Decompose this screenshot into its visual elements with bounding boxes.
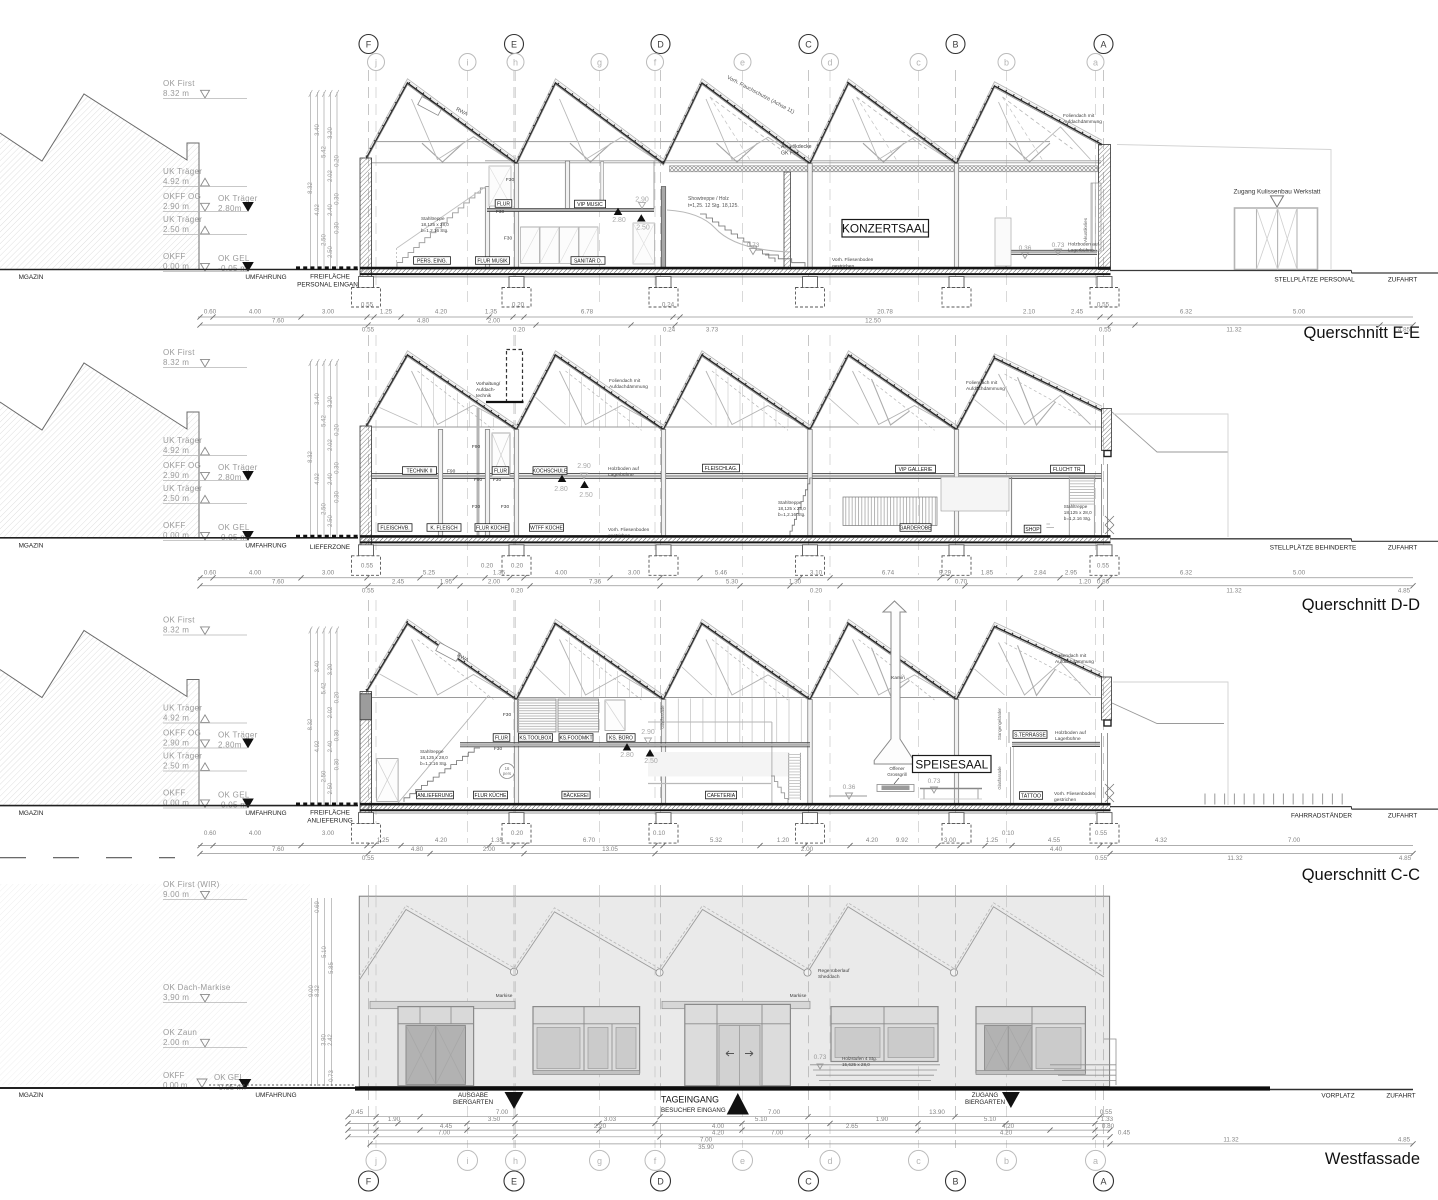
svg-text:WTFF KÜCHE: WTFF KÜCHE (530, 524, 563, 531)
svg-text:2.42: 2.42 (328, 1034, 334, 1046)
svg-text:Aufdach-: Aufdach- (476, 387, 496, 393)
svg-text:pers: pers (503, 771, 511, 776)
svg-text:Stahltreppe: Stahltreppe (421, 216, 445, 221)
svg-text:VIP MUSIC: VIP MUSIC (577, 202, 603, 208)
svg-text:4.00: 4.00 (249, 569, 262, 576)
svg-text:3.00: 3.00 (628, 569, 641, 576)
svg-text:4.20: 4.20 (435, 309, 448, 316)
svg-text:5.42: 5.42 (322, 682, 328, 694)
svg-text:2.00: 2.00 (483, 846, 496, 853)
svg-text:4.80: 4.80 (411, 846, 424, 853)
svg-text:2.90 m: 2.90 m (163, 471, 189, 480)
svg-text:4.80: 4.80 (417, 318, 430, 325)
svg-text:S.TERRASSE: S.TERRASSE (1014, 732, 1046, 738)
svg-text:Vorhaltung/: Vorhaltung/ (476, 381, 501, 387)
svg-text:FLUR KÜCHE: FLUR KÜCHE (475, 792, 508, 799)
svg-text:F90: F90 (472, 444, 481, 450)
svg-text:b=1,2.16 Stg.: b=1,2.16 Stg. (420, 761, 447, 766)
svg-text:OK First: OK First (163, 616, 195, 625)
svg-text:2.50 m: 2.50 m (163, 225, 189, 234)
svg-text:0.73: 0.73 (329, 1070, 335, 1082)
svg-text:OK First: OK First (163, 348, 195, 357)
svg-text:0.30: 0.30 (335, 758, 341, 770)
svg-text:4.40: 4.40 (1050, 846, 1063, 853)
svg-text:2.50: 2.50 (328, 515, 334, 527)
svg-text:2.90 m: 2.90 m (163, 739, 189, 748)
svg-text:h: h (513, 58, 518, 68)
svg-text:0.73: 0.73 (1052, 242, 1065, 249)
svg-text:OKFF OG: OKFF OG (163, 461, 201, 470)
svg-text:5.00: 5.00 (1293, 309, 1306, 316)
svg-text:TAGEINGANG: TAGEINGANG (661, 1095, 719, 1105)
svg-text:Lagerbühne: Lagerbühne (608, 472, 634, 478)
svg-text:FLUR: FLUR (495, 735, 508, 741)
svg-text:D: D (657, 1176, 664, 1186)
svg-text:6.32: 6.32 (1180, 309, 1193, 316)
svg-text:35.90: 35.90 (698, 1144, 714, 1151)
svg-text:SHOP: SHOP (1025, 527, 1040, 533)
svg-text:2.50: 2.50 (322, 770, 328, 782)
svg-text:3.20: 3.20 (328, 396, 334, 408)
svg-text:5.85: 5.85 (329, 962, 335, 974)
svg-text:1.90: 1.90 (388, 1116, 401, 1123)
svg-text:F30: F30 (493, 477, 502, 483)
svg-text:ZUFAHRT: ZUFAHRT (1386, 1093, 1415, 1100)
svg-text:11.32: 11.32 (1223, 1136, 1239, 1143)
svg-text:12.50: 12.50 (865, 318, 881, 325)
svg-text:UK Träger: UK Träger (163, 752, 202, 761)
svg-text:2.90: 2.90 (641, 729, 655, 736)
svg-text:3.00: 3.00 (322, 309, 335, 316)
svg-text:0.55: 0.55 (1097, 562, 1110, 569)
svg-text:2.50 m: 2.50 m (163, 494, 189, 503)
svg-text:0.20: 0.20 (335, 691, 341, 703)
svg-text:F30: F30 (503, 712, 512, 718)
svg-text:MGAZIN: MGAZIN (19, 1092, 44, 1099)
svg-text:0.55: 0.55 (1095, 830, 1108, 837)
svg-text:5.10: 5.10 (755, 1116, 768, 1123)
svg-text:1.30: 1.30 (789, 578, 802, 585)
svg-text:OKFF: OKFF (163, 1071, 184, 1080)
svg-text:0.20: 0.20 (810, 587, 823, 594)
svg-text:b=1,2.16 Stg.: b=1,2.16 Stg. (778, 512, 805, 517)
svg-text:2.02: 2.02 (328, 439, 334, 451)
svg-text:13.90: 13.90 (929, 1109, 945, 1116)
svg-text:Foliendach mit: Foliendach mit (609, 378, 641, 384)
svg-text:a: a (1093, 1156, 1098, 1166)
svg-text:2.80m: 2.80m (218, 473, 242, 482)
svg-text:6.32: 6.32 (1180, 569, 1193, 576)
svg-text:b: b (1004, 58, 1009, 68)
svg-text:F90: F90 (447, 469, 456, 475)
svg-text:5.46: 5.46 (715, 569, 728, 576)
svg-text:4.85: 4.85 (1399, 855, 1412, 862)
svg-text:e: e (740, 1156, 745, 1166)
svg-text:0.10: 0.10 (1002, 830, 1015, 837)
svg-text:FLEISCHVB.: FLEISCHVB. (380, 525, 409, 531)
svg-text:2.50 m: 2.50 m (163, 762, 189, 771)
svg-text:UK Träger: UK Träger (163, 484, 202, 493)
svg-text:5.10: 5.10 (984, 1116, 997, 1123)
svg-text:0.55: 0.55 (362, 327, 375, 334)
svg-text:CAFETERIA: CAFETERIA (707, 793, 736, 799)
svg-text:4.55: 4.55 (1048, 837, 1061, 844)
svg-text:VIP GALLERIE: VIP GALLERIE (899, 467, 933, 473)
svg-text:4.00: 4.00 (555, 569, 568, 576)
svg-text:0.20: 0.20 (335, 424, 341, 436)
svg-text:Aufdachdämmung: Aufdachdämmung (966, 386, 1005, 392)
svg-text:5.42: 5.42 (322, 415, 328, 427)
svg-text:FAHRRADSTÄNDER: FAHRRADSTÄNDER (1291, 812, 1352, 820)
svg-text:ZUFAHRT: ZUFAHRT (1388, 813, 1417, 820)
svg-text:Lagerbühne: Lagerbühne (1068, 248, 1094, 254)
svg-text:1.85: 1.85 (981, 569, 994, 576)
svg-text:Showtreppe / Holz: Showtreppe / Holz (688, 196, 729, 202)
svg-text:7.00: 7.00 (1288, 837, 1301, 844)
svg-text:F30: F30 (472, 504, 481, 510)
svg-text:0.73: 0.73 (747, 242, 760, 249)
svg-text:0.20: 0.20 (481, 562, 494, 569)
svg-text:3.90: 3.90 (322, 1034, 328, 1046)
svg-text:BESUCHER EINGANG: BESUCHER EINGANG (661, 1107, 726, 1114)
svg-text:STELLPLÄTZE BEHINDERTE: STELLPLÄTZE BEHINDERTE (1270, 543, 1357, 551)
svg-text:Offener: Offener (889, 766, 905, 771)
svg-text:VORPLATZ: VORPLATZ (1321, 1093, 1354, 1100)
svg-text:OK First (WIR): OK First (WIR) (163, 880, 220, 889)
svg-text:2.80m: 2.80m (218, 204, 242, 213)
svg-text:D: D (657, 39, 664, 49)
svg-text:a: a (1093, 58, 1098, 68)
svg-text:OK Träger: OK Träger (218, 194, 258, 203)
svg-text:FLUCHT TR.: FLUCHT TR. (1053, 467, 1082, 473)
svg-text:F30: F30 (506, 177, 515, 183)
svg-text:1.35: 1.35 (485, 309, 498, 316)
svg-text:OKFF: OKFF (163, 789, 186, 798)
svg-text:0.20: 0.20 (513, 327, 526, 334)
svg-text:e: e (740, 58, 745, 68)
svg-text:0.20: 0.20 (511, 830, 524, 837)
svg-text:2.65: 2.65 (846, 1123, 859, 1130)
svg-text:g: g (597, 58, 602, 68)
svg-text:11.32: 11.32 (1227, 855, 1243, 862)
svg-text:SPEISESAAL: SPEISESAAL (915, 758, 988, 772)
svg-text:2.90 m: 2.90 m (163, 202, 189, 211)
svg-text:Querschnitt E-E: Querschnitt E-E (1304, 324, 1420, 342)
svg-text:Foliendach mit: Foliendach mit (1063, 113, 1095, 119)
svg-text:g: g (597, 1156, 602, 1166)
svg-text:Aufdachdämmung: Aufdachdämmung (1063, 119, 1102, 125)
svg-text:7.60: 7.60 (272, 578, 285, 585)
svg-text:0.30: 0.30 (335, 462, 341, 474)
svg-text:4.92: 4.92 (315, 740, 321, 752)
svg-text:8.32 m: 8.32 m (163, 626, 189, 635)
svg-text:AUSGABE: AUSGABE (458, 1092, 488, 1099)
svg-text:d: d (827, 58, 832, 68)
svg-text:C: C (805, 1176, 812, 1186)
svg-text:i: i (467, 58, 469, 68)
svg-text:0.55: 0.55 (362, 587, 375, 594)
svg-text:i: i (467, 1156, 469, 1166)
svg-text:4.85: 4.85 (1398, 587, 1411, 594)
svg-text:F30: F30 (504, 236, 513, 242)
svg-text:0.70: 0.70 (955, 578, 968, 585)
svg-text:STELLPLÄTZE PERSONAL: STELLPLÄTZE PERSONAL (1274, 276, 1355, 284)
svg-text:gestrichen: gestrichen (1054, 797, 1076, 803)
svg-text:BIERGARTEN: BIERGARTEN (965, 1099, 1005, 1106)
svg-text:OK Träger: OK Träger (218, 463, 258, 472)
svg-text:ANLIEFERUNG: ANLIEFERUNG (417, 793, 453, 799)
svg-text:C: C (805, 39, 812, 49)
svg-text:OKFF OG: OKFF OG (163, 729, 201, 738)
svg-text:BÄCKEREI: BÄCKEREI (563, 792, 588, 799)
svg-text:8.32: 8.32 (308, 718, 314, 730)
svg-text:ZUGANG: ZUGANG (972, 1092, 999, 1099)
svg-text:FLUR: FLUR (497, 201, 510, 207)
svg-text:1.35: 1.35 (493, 569, 506, 576)
svg-text:FREIFLÄCHE: FREIFLÄCHE (310, 273, 350, 281)
svg-text:7.60: 7.60 (272, 846, 285, 853)
svg-text:5.25: 5.25 (423, 569, 436, 576)
svg-text:0.55: 0.55 (361, 302, 374, 309)
svg-text:0.55: 0.55 (1099, 327, 1112, 334)
svg-text:KS.FOODMKT: KS.FOODMKT (559, 735, 592, 741)
svg-text:0.20: 0.20 (512, 302, 525, 309)
svg-text:Stahltreppe: Stahltreppe (778, 500, 802, 505)
svg-text:8.32: 8.32 (308, 182, 314, 194)
svg-text:4.85: 4.85 (1398, 1136, 1411, 1143)
svg-text:0.20: 0.20 (335, 155, 341, 167)
svg-text:1.25: 1.25 (380, 309, 393, 316)
svg-text:Grossgrill: Grossgrill (887, 772, 906, 777)
svg-text:BIERGARTEN: BIERGARTEN (453, 1099, 493, 1106)
svg-text:Aufdachdämmung: Aufdachdämmung (609, 384, 648, 390)
svg-text:6.78: 6.78 (581, 309, 594, 316)
svg-text:0.55: 0.55 (1095, 855, 1108, 862)
svg-text:3.50: 3.50 (488, 1116, 501, 1123)
svg-text:UK Träger: UK Träger (163, 436, 202, 445)
svg-text:1.20: 1.20 (1079, 578, 1092, 585)
svg-text:0.60: 0.60 (204, 569, 217, 576)
svg-text:Aufdachdämmung: Aufdachdämmung (1055, 659, 1094, 665)
svg-text:4.20: 4.20 (1000, 1130, 1013, 1137)
svg-text:4.00: 4.00 (249, 309, 262, 316)
svg-text:2.40: 2.40 (328, 204, 334, 216)
svg-text:A: A (1100, 39, 1106, 49)
svg-text:t=1,25. 12 Stg. 18,125.: t=1,25. 12 Stg. 18,125. (688, 203, 739, 209)
svg-text:KONZERTSAAL: KONZERTSAAL (842, 222, 929, 236)
svg-text:2.50: 2.50 (328, 782, 334, 794)
svg-text:Holzboden auf: Holzboden auf (1068, 242, 1100, 248)
svg-text:Westfassade: Westfassade (1325, 1150, 1420, 1168)
svg-text:18,125 x 28,0: 18,125 x 28,0 (421, 222, 449, 227)
svg-text:2.50: 2.50 (644, 758, 658, 765)
svg-text:UMFAHRUNG: UMFAHRUNG (245, 542, 286, 549)
svg-text:0.20: 0.20 (511, 562, 524, 569)
svg-text:0.60: 0.60 (204, 309, 217, 316)
svg-text:PERS. EING.: PERS. EING. (417, 258, 447, 264)
svg-text:Vorh. Fliesenboden: Vorh. Fliesenboden (1054, 791, 1096, 797)
svg-text:0.10: 0.10 (653, 830, 666, 837)
svg-text:ZUFAHRT: ZUFAHRT (1388, 277, 1417, 284)
svg-text:3.73: 3.73 (706, 327, 719, 334)
svg-text:0.45: 0.45 (1118, 1130, 1131, 1137)
svg-text:3.20: 3.20 (328, 663, 334, 675)
svg-text:c: c (916, 1156, 921, 1166)
svg-text:F: F (366, 39, 372, 49)
svg-text:8.32 m: 8.32 m (163, 358, 189, 367)
svg-text:2.40: 2.40 (328, 740, 334, 752)
svg-text:4.92 m: 4.92 m (163, 177, 189, 186)
svg-text:OK GEL: OK GEL (218, 791, 250, 800)
svg-text:0.73: 0.73 (928, 778, 941, 785)
svg-text:E: E (511, 39, 517, 49)
svg-text:Markise: Markise (790, 993, 807, 999)
svg-text:7.00: 7.00 (438, 1130, 451, 1137)
svg-text:c: c (916, 58, 921, 68)
svg-text:UMFAHRUNG: UMFAHRUNG (245, 810, 286, 817)
svg-text:GARDEROBE: GARDEROBE (900, 525, 933, 531)
svg-text:F: F (366, 1176, 372, 1186)
svg-text:2.00 m: 2.00 m (163, 1038, 189, 1047)
svg-text:OK Träger: OK Träger (218, 731, 258, 740)
svg-text:Stangengeländer: Stangengeländer (997, 707, 1002, 740)
svg-text:1.95: 1.95 (440, 578, 453, 585)
svg-text:2.20: 2.20 (594, 1123, 607, 1130)
svg-text:b: b (1004, 1156, 1009, 1166)
svg-text:0.55: 0.55 (361, 562, 374, 569)
svg-text:1.20: 1.20 (777, 837, 790, 844)
svg-text:5.00: 5.00 (1293, 569, 1306, 576)
svg-text:2.50: 2.50 (579, 492, 593, 499)
svg-text:Markise: Markise (496, 993, 513, 999)
svg-text:2.02: 2.02 (328, 170, 334, 182)
svg-text:OKFF: OKFF (163, 252, 186, 261)
svg-text:7.36: 7.36 (589, 578, 602, 585)
svg-text:Sheddach: Sheddach (818, 974, 840, 980)
svg-text:1.25: 1.25 (986, 837, 999, 844)
svg-text:5.30: 5.30 (726, 578, 739, 585)
svg-text:B: B (952, 1176, 958, 1186)
svg-text:0.30: 0.30 (335, 222, 341, 234)
svg-text:18,125 x 28,0: 18,125 x 28,0 (1064, 510, 1092, 515)
svg-text:E: E (511, 1176, 517, 1186)
svg-text:TATTOO: TATTOO (1021, 793, 1041, 799)
svg-text:Holzstufen 4 Stg.: Holzstufen 4 Stg. (842, 1056, 877, 1061)
svg-text:F90: F90 (474, 477, 483, 483)
svg-text:Lagerbühne: Lagerbühne (1055, 736, 1081, 742)
svg-text:0.86: 0.86 (1097, 578, 1110, 585)
svg-text:0.36: 0.36 (1019, 245, 1032, 252)
svg-text:0.24: 0.24 (662, 302, 675, 309)
svg-text:UK Träger: UK Träger (163, 167, 202, 176)
svg-text:1.90: 1.90 (876, 1116, 889, 1123)
svg-text:0.30: 0.30 (335, 491, 341, 503)
svg-text:0.24: 0.24 (663, 327, 676, 334)
svg-text:UMFAHRUNG: UMFAHRUNG (255, 1092, 296, 1099)
svg-text:3.20: 3.20 (328, 127, 334, 139)
svg-text:0.20: 0.20 (511, 587, 524, 594)
svg-text:0.55: 0.55 (1097, 302, 1110, 309)
svg-text:MGAZIN: MGAZIN (19, 542, 44, 549)
svg-text:FREIFLÄCHE: FREIFLÄCHE (310, 809, 350, 817)
svg-text:1.25: 1.25 (377, 837, 390, 844)
svg-text:Querschnitt D-D: Querschnitt D-D (1302, 596, 1420, 614)
svg-text:2.80: 2.80 (620, 752, 634, 759)
svg-text:4.92: 4.92 (315, 204, 321, 216)
svg-text:OK Zaun: OK Zaun (163, 1028, 197, 1037)
svg-text:h: h (513, 1156, 518, 1166)
svg-text:4.00: 4.00 (249, 830, 262, 837)
svg-text:Holzboden auf: Holzboden auf (608, 466, 640, 472)
svg-text:Vorh. Fliesenboden: Vorh. Fliesenboden (608, 527, 650, 533)
svg-text:6.74: 6.74 (882, 569, 895, 576)
svg-text:-0.05 m: -0.05 m (218, 264, 247, 273)
svg-text:Regenüberlauf: Regenüberlauf (818, 968, 850, 974)
svg-text:d: d (827, 1156, 832, 1166)
svg-text:5.42: 5.42 (322, 146, 328, 158)
svg-text:4.20: 4.20 (866, 837, 879, 844)
svg-text:2.50: 2.50 (322, 503, 328, 515)
svg-text:Querschnitt C-C: Querschnitt C-C (1302, 866, 1420, 884)
svg-text:5.32: 5.32 (710, 837, 723, 844)
svg-text:4.20: 4.20 (435, 837, 448, 844)
svg-text:2.50: 2.50 (328, 246, 334, 258)
svg-text:7.60: 7.60 (272, 318, 285, 325)
svg-text:UK Träger: UK Träger (163, 704, 202, 713)
svg-text:4.32: 4.32 (1155, 837, 1168, 844)
svg-text:2.84: 2.84 (1034, 569, 1047, 576)
svg-text:TECHNIK II: TECHNIK II (406, 468, 432, 474)
svg-text:MGAZIN: MGAZIN (19, 810, 44, 817)
svg-text:0.36: 0.36 (843, 784, 856, 791)
svg-text:Vorh. Fliesenboden: Vorh. Fliesenboden (832, 257, 874, 263)
svg-text:4.92 m: 4.92 m (163, 714, 189, 723)
svg-text:0.73: 0.73 (814, 1054, 827, 1061)
svg-text:7.00: 7.00 (768, 1109, 781, 1116)
svg-text:Stahltreppe: Stahltreppe (1064, 504, 1088, 509)
svg-text:FLUR KÜCHE: FLUR KÜCHE (476, 524, 509, 531)
svg-text:2.00: 2.00 (488, 578, 501, 585)
svg-text:Foliendach mit: Foliendach mit (966, 380, 998, 386)
svg-text:F30: F30 (501, 504, 510, 510)
svg-text:9.29: 9.29 (939, 569, 952, 576)
svg-text:5.10: 5.10 (322, 946, 328, 958)
svg-text:2.10: 2.10 (1023, 309, 1036, 316)
svg-text:technik: technik (476, 393, 492, 399)
svg-text:18,125 x 28,0: 18,125 x 28,0 (778, 506, 806, 511)
svg-text:Glasfassade: Glasfassade (997, 766, 1002, 790)
svg-text:2.95: 2.95 (1065, 569, 1078, 576)
svg-text:2.45: 2.45 (392, 578, 405, 585)
svg-text:OK GEL: OK GEL (218, 254, 250, 263)
svg-text:Holzboden auf: Holzboden auf (1055, 730, 1087, 736)
svg-text:9.92: 9.92 (896, 837, 909, 844)
svg-text:OK GEL: OK GEL (218, 523, 250, 532)
svg-text:15,625 x 28,0: 15,625 x 28,0 (842, 1062, 870, 1067)
svg-text:2.80m: 2.80m (218, 741, 242, 750)
svg-text:F30: F30 (496, 209, 505, 215)
svg-text:FLUR MUSIK: FLUR MUSIK (477, 258, 508, 264)
svg-text:0.30: 0.30 (335, 729, 341, 741)
svg-text:OK Dach-Markise: OK Dach-Markise (163, 983, 231, 992)
svg-text:6.70: 6.70 (583, 837, 596, 844)
svg-text:j: j (374, 58, 377, 68)
svg-text:0.60: 0.60 (204, 830, 217, 837)
svg-text:MGAZIN: MGAZIN (19, 274, 44, 281)
svg-text:Foliendach mit: Foliendach mit (1055, 653, 1087, 659)
svg-text:3.40: 3.40 (315, 660, 321, 672)
svg-text:B: B (952, 39, 958, 49)
